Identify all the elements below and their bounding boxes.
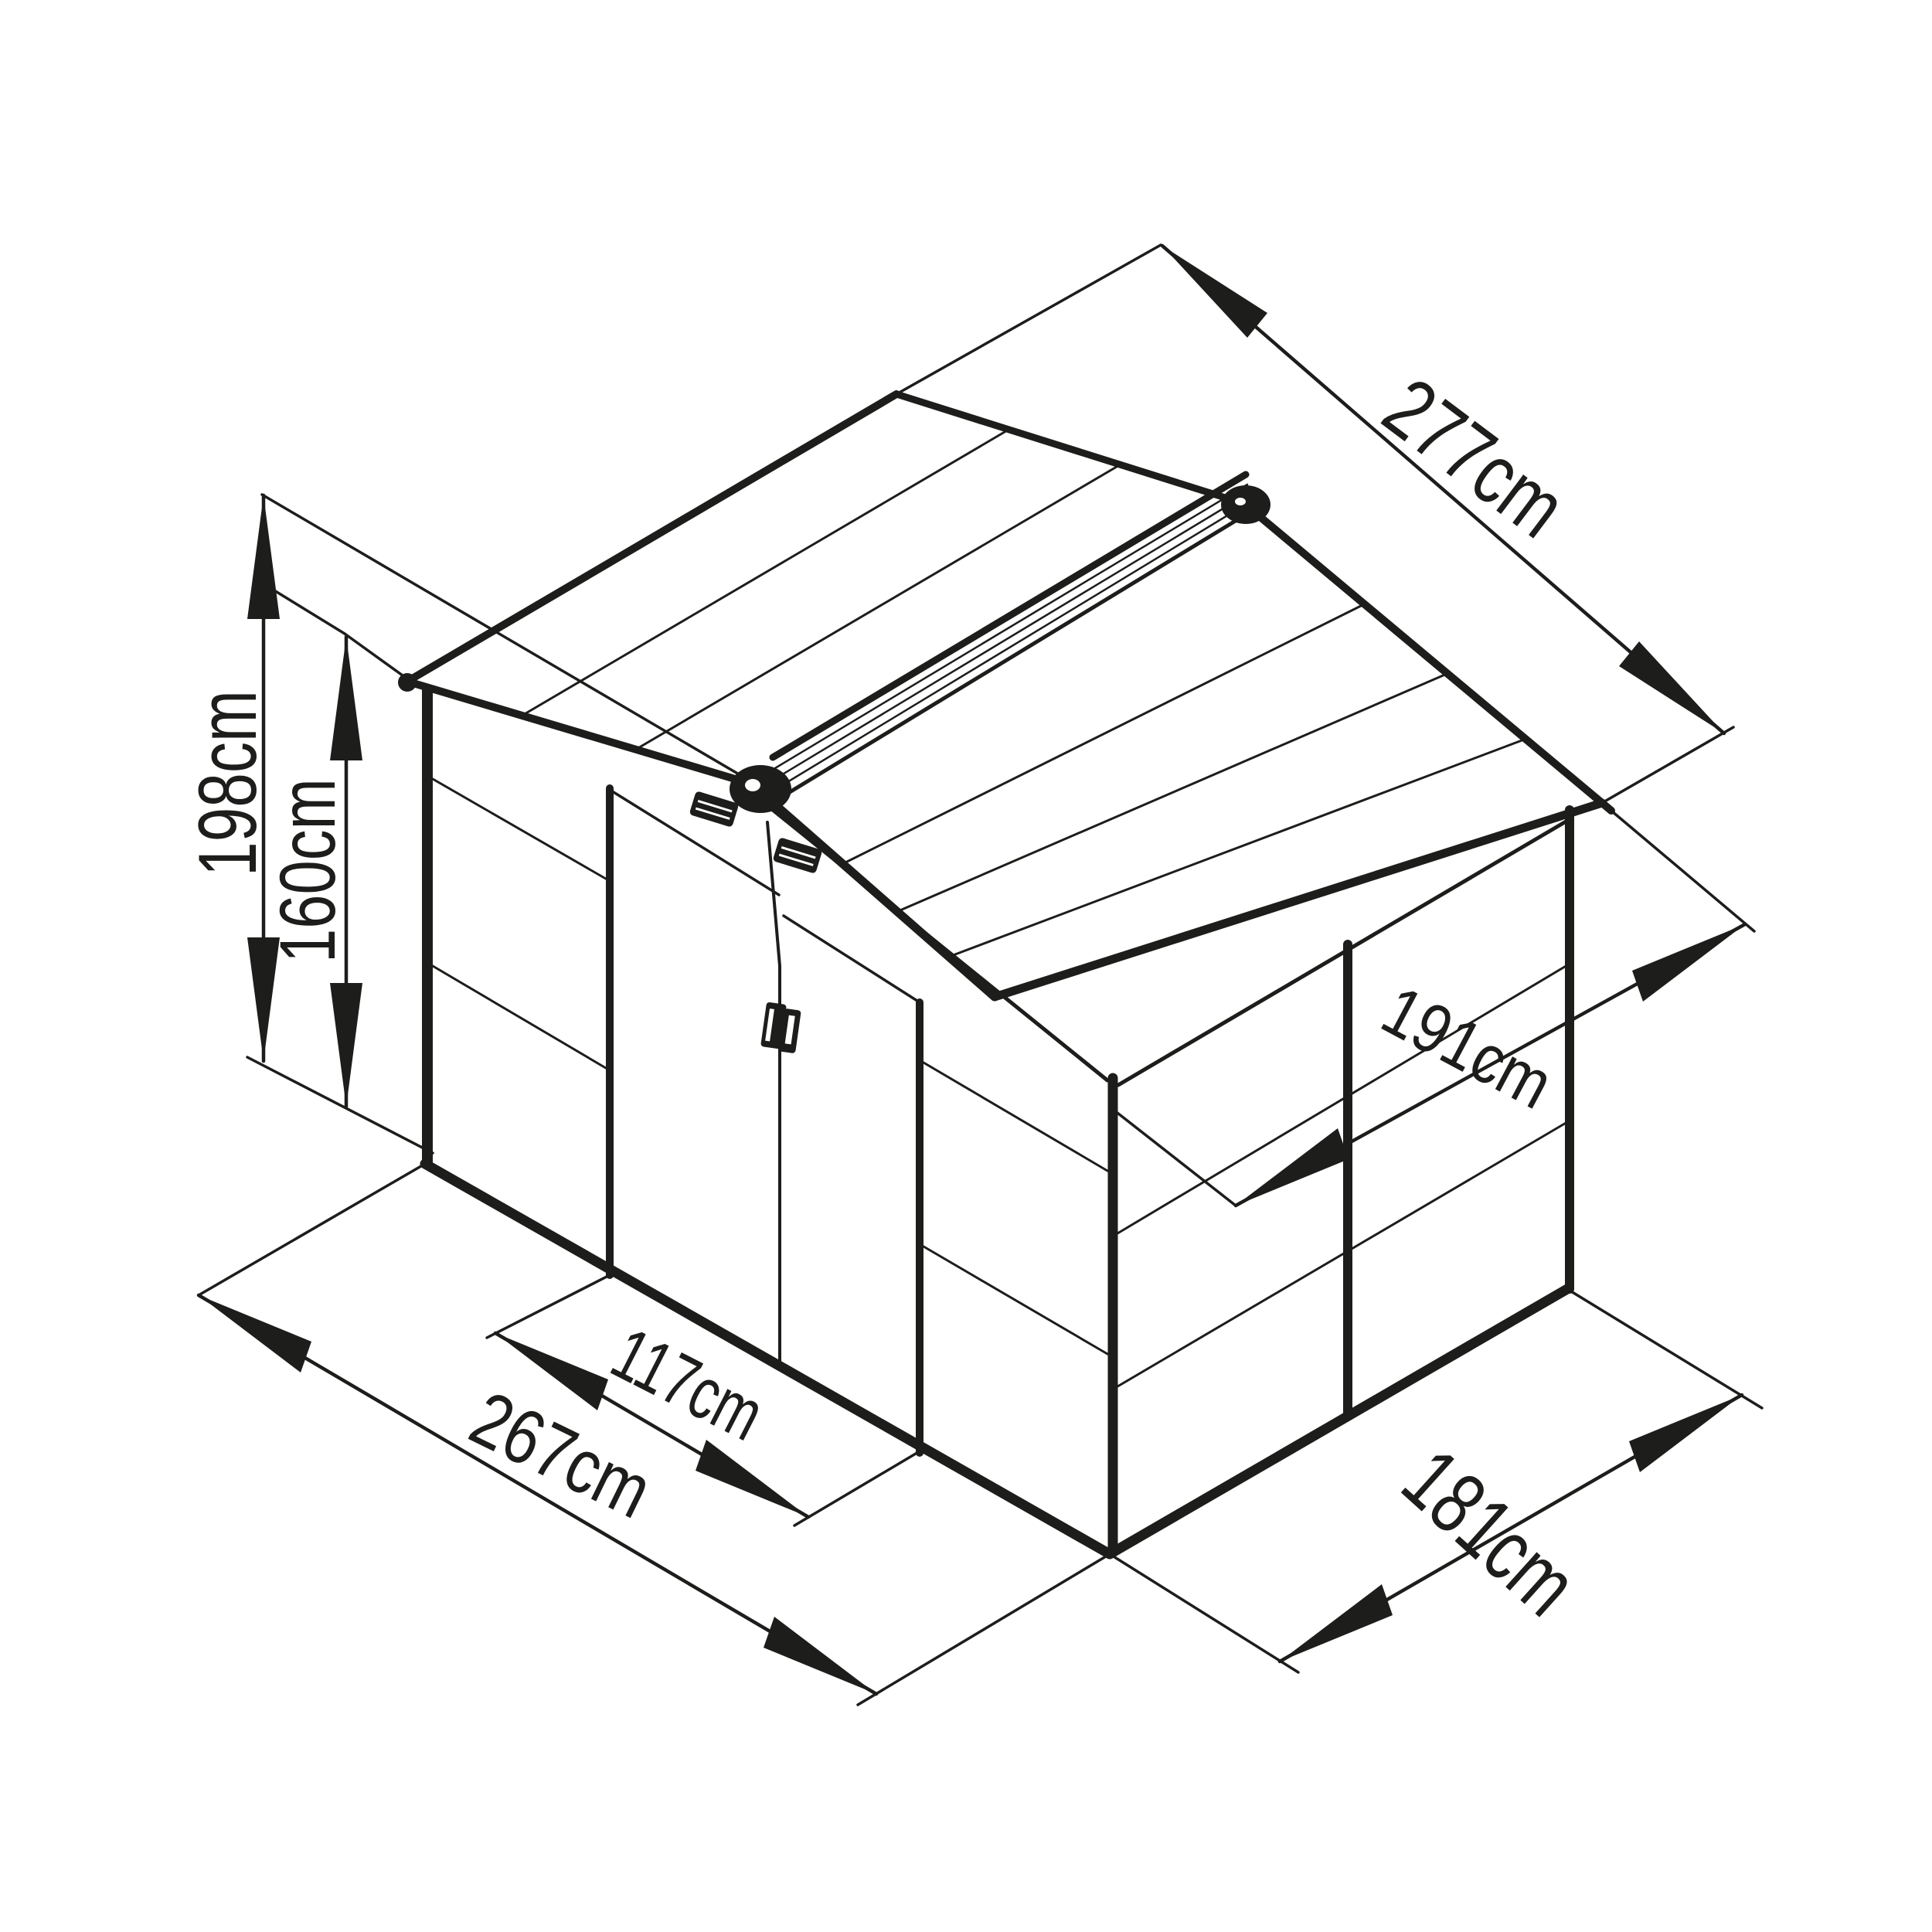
svg-text:198cm: 198cm [182, 690, 274, 876]
svg-text:160cm: 160cm [264, 778, 352, 963]
